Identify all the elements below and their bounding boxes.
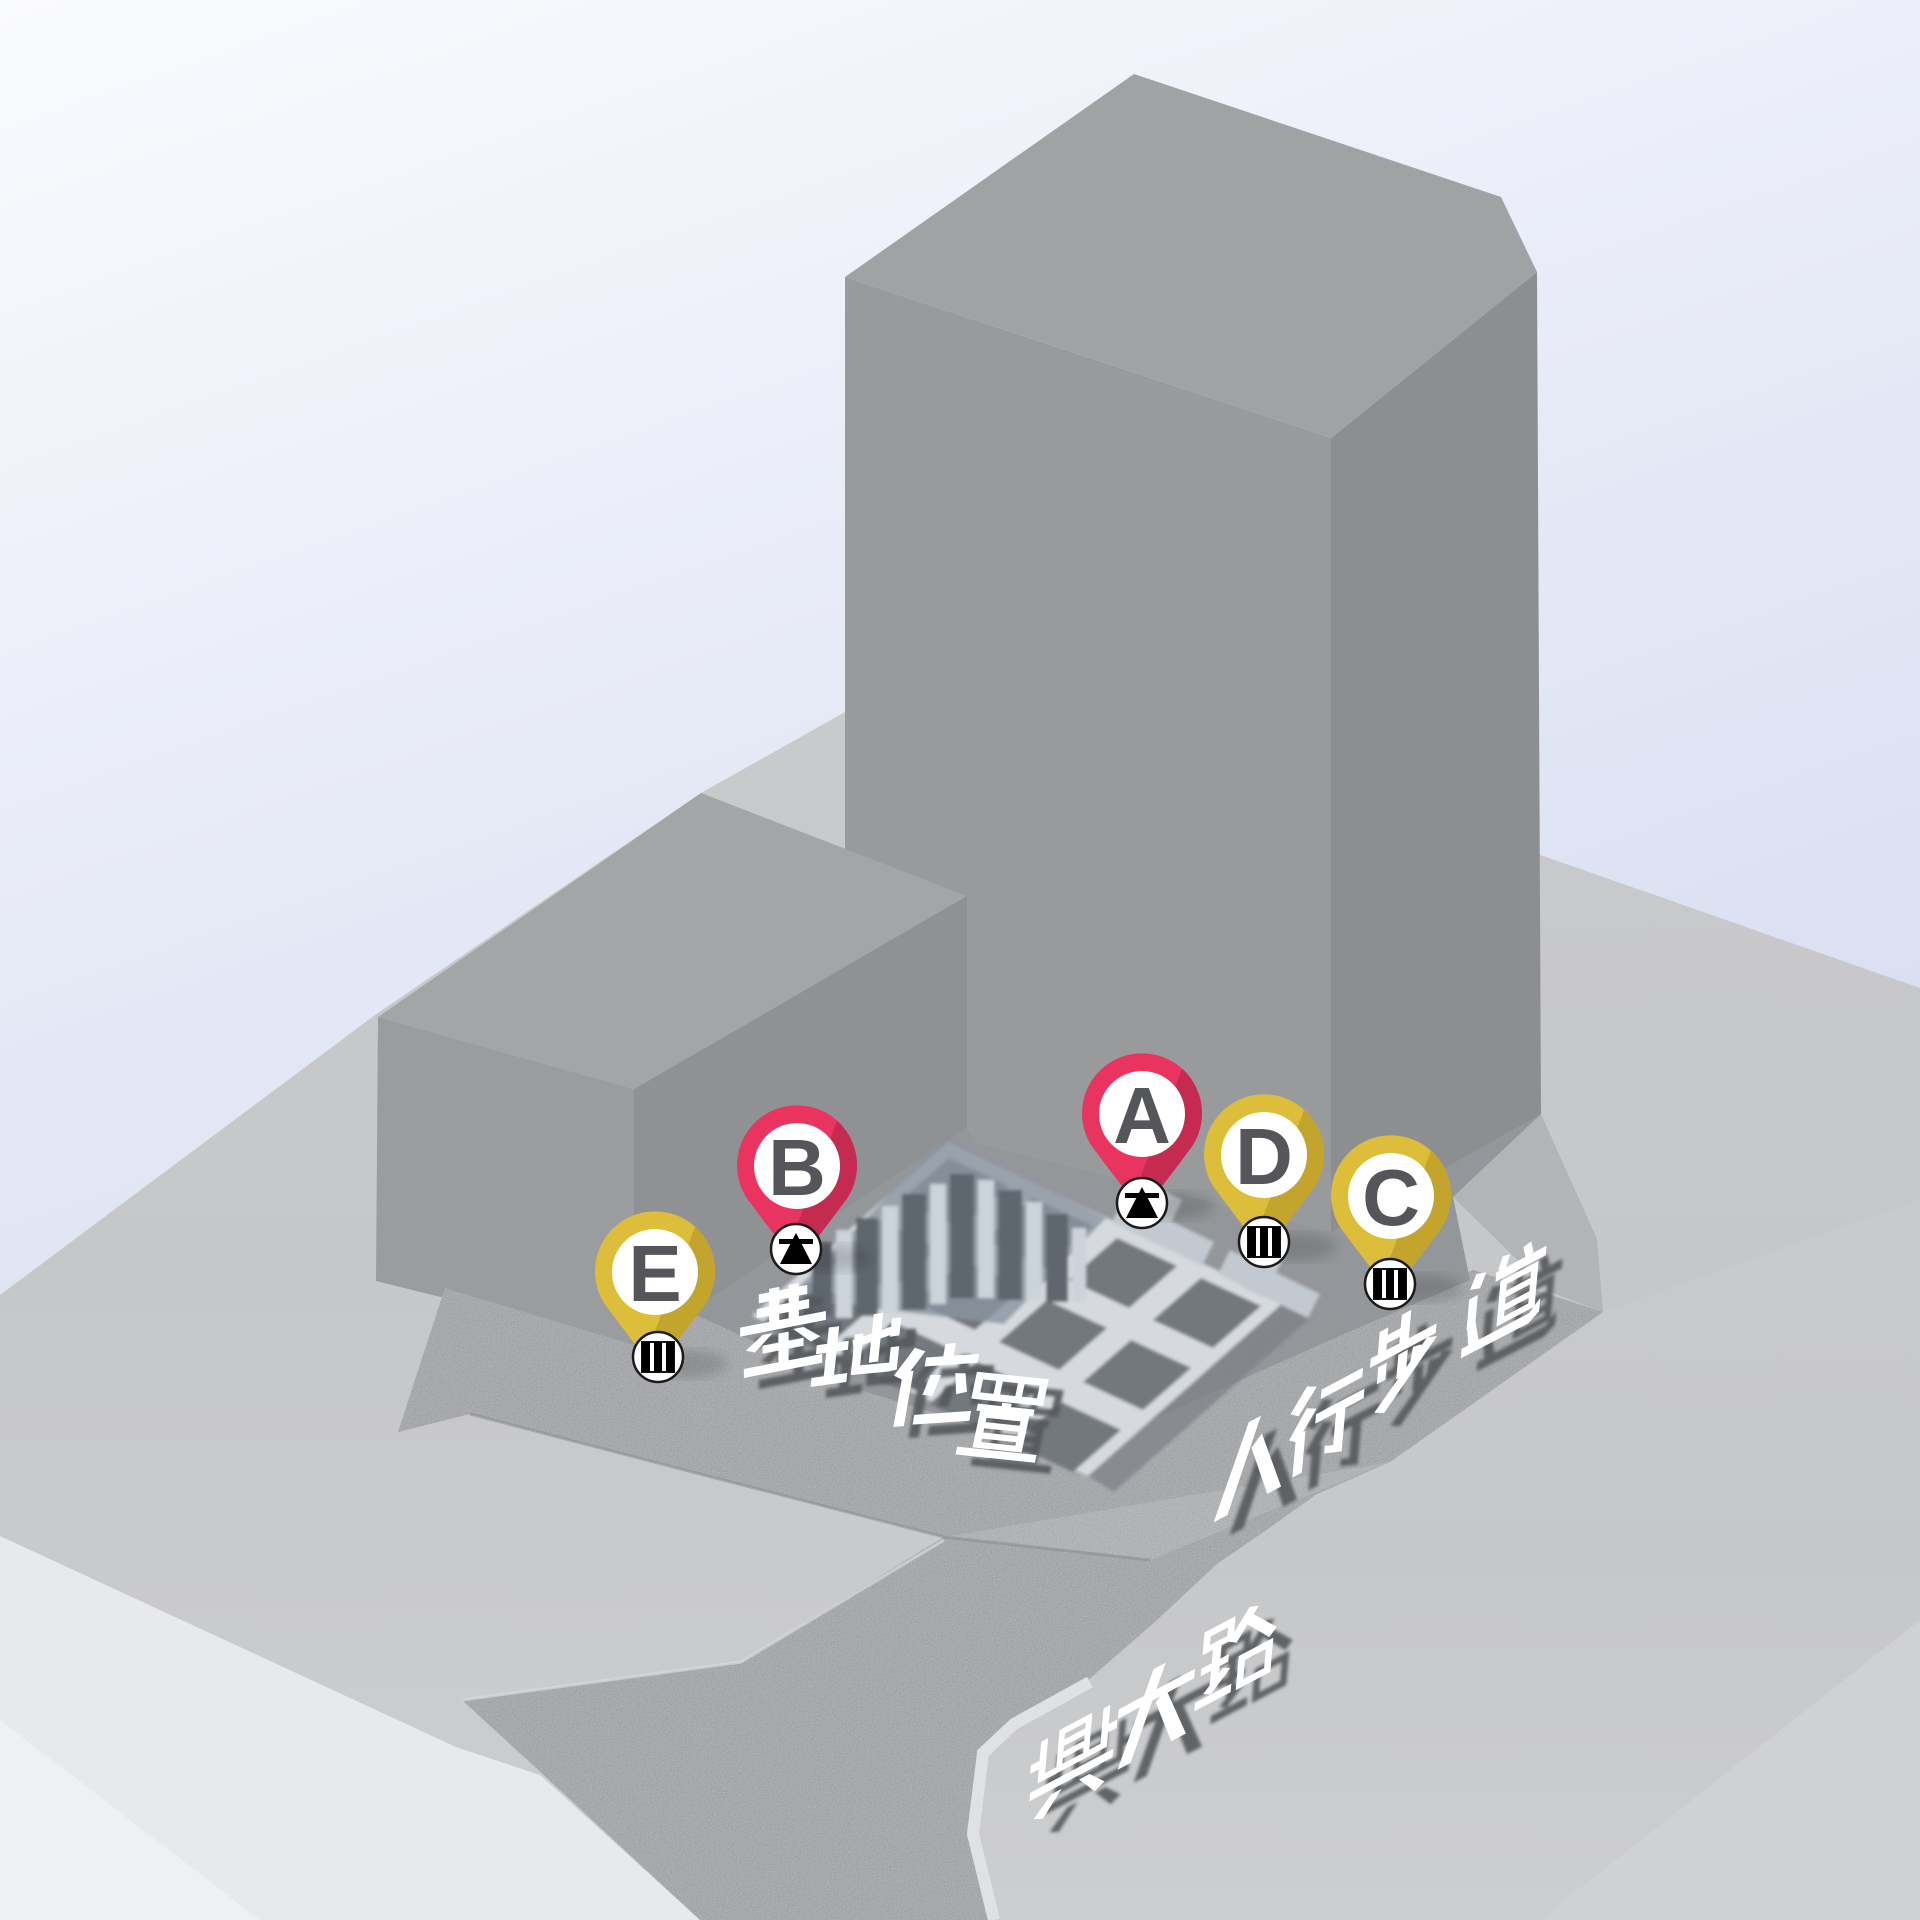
svg-text:D: D	[1235, 1112, 1293, 1201]
svg-text:C: C	[1362, 1153, 1420, 1242]
svg-text:B: B	[768, 1123, 826, 1212]
svg-text:E: E	[628, 1229, 681, 1318]
svg-text:A: A	[1113, 1071, 1171, 1160]
